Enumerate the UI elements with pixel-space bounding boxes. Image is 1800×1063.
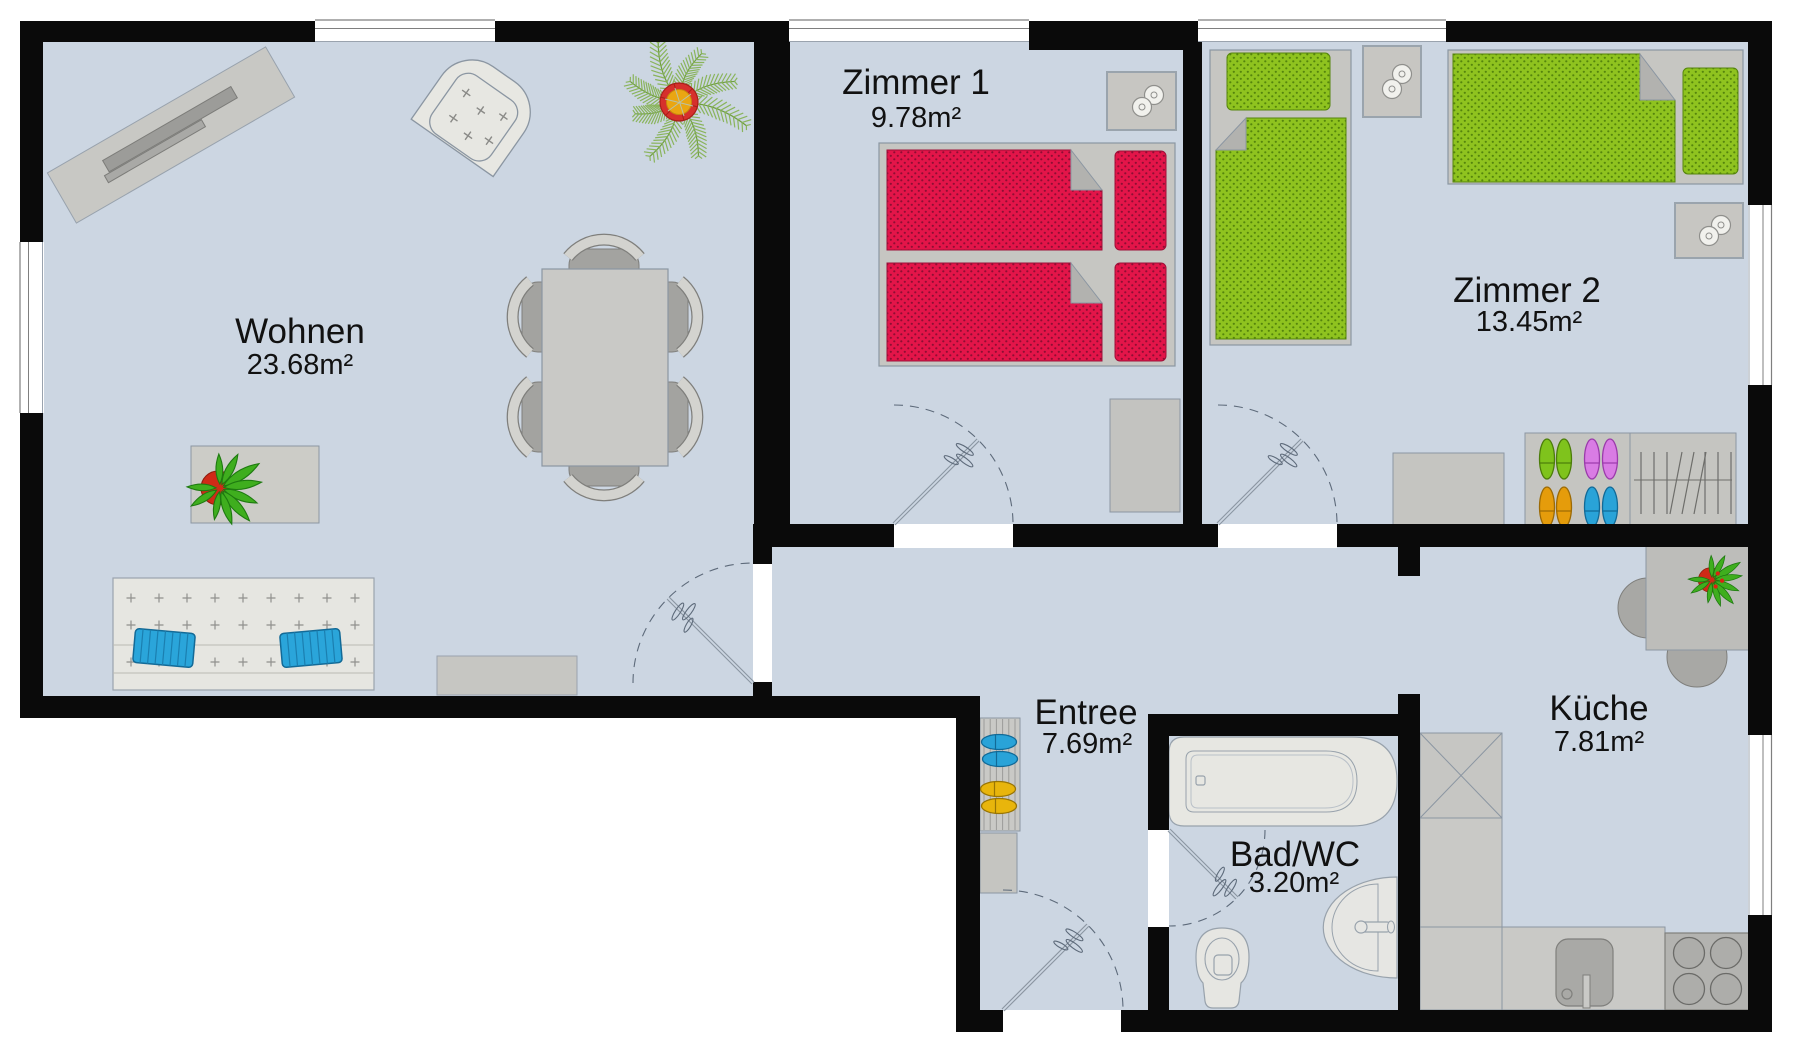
svg-text:9.78m²: 9.78m² <box>871 102 962 134</box>
svg-text:13.45m²: 13.45m² <box>1476 306 1583 338</box>
svg-text:23.68m²: 23.68m² <box>247 349 354 381</box>
svg-text:7.69m²: 7.69m² <box>1042 728 1133 760</box>
svg-text:Entree: Entree <box>1034 693 1137 732</box>
svg-text:7.81m²: 7.81m² <box>1554 726 1645 758</box>
svg-text:Küche: Küche <box>1549 689 1648 728</box>
svg-text:Zimmer 2: Zimmer 2 <box>1453 271 1601 310</box>
svg-text:Zimmer 1: Zimmer 1 <box>842 63 990 102</box>
svg-text:3.20m²: 3.20m² <box>1249 867 1340 899</box>
svg-text:Wohnen: Wohnen <box>235 312 365 351</box>
